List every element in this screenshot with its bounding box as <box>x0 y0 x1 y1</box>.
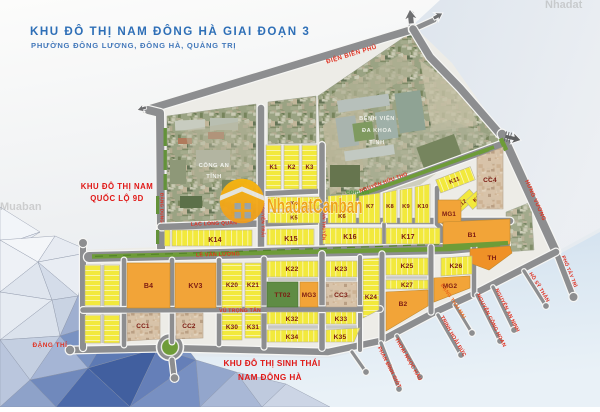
svg-text:com.vn: com.vn <box>346 189 369 196</box>
svg-text:K8: K8 <box>386 204 394 210</box>
svg-text:K20: K20 <box>226 282 239 289</box>
svg-text:K21: K21 <box>247 282 260 289</box>
svg-text:B2: B2 <box>399 301 408 308</box>
svg-text:Nhadat: Nhadat <box>545 0 583 11</box>
svg-text:K9: K9 <box>402 204 410 210</box>
svg-text:K26: K26 <box>449 263 462 270</box>
svg-text:K33: K33 <box>335 316 348 323</box>
svg-text:MG3: MG3 <box>302 292 317 299</box>
svg-text:CÔNG AN: CÔNG AN <box>199 161 230 169</box>
svg-text:Muaban: Muaban <box>0 201 42 213</box>
svg-text:ĐẶNG DUNG: ĐẶNG DUNG <box>160 193 166 223</box>
svg-text:K27: K27 <box>401 282 413 289</box>
svg-text:ĐA KHOA: ĐA KHOA <box>362 128 392 134</box>
svg-text:KHU ĐÔ THỊ NAM ĐÔNG HÀ GIAI ĐO: KHU ĐÔ THỊ NAM ĐÔNG HÀ GIAI ĐOẠN 3 <box>30 25 310 38</box>
svg-text:K17: K17 <box>401 234 414 241</box>
svg-text:B4: B4 <box>144 283 153 290</box>
svg-text:K35: K35 <box>334 334 347 341</box>
svg-text:K32: K32 <box>286 316 299 323</box>
svg-text:K16: K16 <box>343 234 356 241</box>
svg-text:KHU ĐÔ THỊ NAM: KHU ĐÔ THỊ NAM <box>81 182 153 191</box>
svg-text:VŨ TRỌNG TẤN: VŨ TRỌNG TẤN <box>219 307 261 314</box>
svg-text:BỆNH VIỆN: BỆNH VIỆN <box>359 114 395 122</box>
svg-text:K25: K25 <box>400 263 413 270</box>
svg-text:K30: K30 <box>226 324 239 331</box>
svg-text:K22: K22 <box>285 266 298 273</box>
svg-text:K14: K14 <box>208 237 221 244</box>
svg-text:ĐẶNG THÍ: ĐẶNG THÍ <box>33 340 68 349</box>
svg-text:CC2: CC2 <box>182 323 196 330</box>
svg-text:K31: K31 <box>247 324 260 331</box>
svg-text:KV3: KV3 <box>188 283 202 290</box>
svg-text:TỈNH: TỈNH <box>369 139 384 146</box>
svg-text:K10: K10 <box>417 204 428 210</box>
svg-text:TH: TH <box>487 255 496 262</box>
svg-text:KHU ĐÔ THỊ SINH THÁI: KHU ĐÔ THỊ SINH THÁI <box>224 357 321 368</box>
svg-text:CC4: CC4 <box>483 177 497 184</box>
svg-text:K2: K2 <box>287 165 296 171</box>
svg-text:K7: K7 <box>366 204 374 210</box>
svg-text:K3: K3 <box>305 165 314 171</box>
svg-text:B1: B1 <box>468 232 477 239</box>
svg-text:MG1: MG1 <box>442 211 456 218</box>
svg-text:K23: K23 <box>334 266 347 273</box>
svg-text:K24: K24 <box>365 294 378 301</box>
svg-text:PHƯỜNG ĐÔNG LƯƠNG, ĐÔNG HÀ, QU: PHƯỜNG ĐÔNG LƯƠNG, ĐÔNG HÀ, QUẢNG TRỊ <box>31 41 236 50</box>
svg-text:NhadatCanban: NhadatCanban <box>267 194 363 218</box>
svg-text:K15: K15 <box>284 236 297 243</box>
svg-text:QUỐC LỘ 9D: QUỐC LỘ 9D <box>90 193 144 203</box>
svg-text:CC1: CC1 <box>136 323 150 330</box>
svg-text:TT02: TT02 <box>274 292 290 299</box>
svg-text:K34: K34 <box>286 334 299 341</box>
svg-text:TỈNH: TỈNH <box>206 173 222 180</box>
svg-text:NAM ĐÔNG HÀ: NAM ĐÔNG HÀ <box>238 371 302 382</box>
svg-text:K1: K1 <box>269 165 278 171</box>
svg-text:CC3: CC3 <box>334 292 348 299</box>
